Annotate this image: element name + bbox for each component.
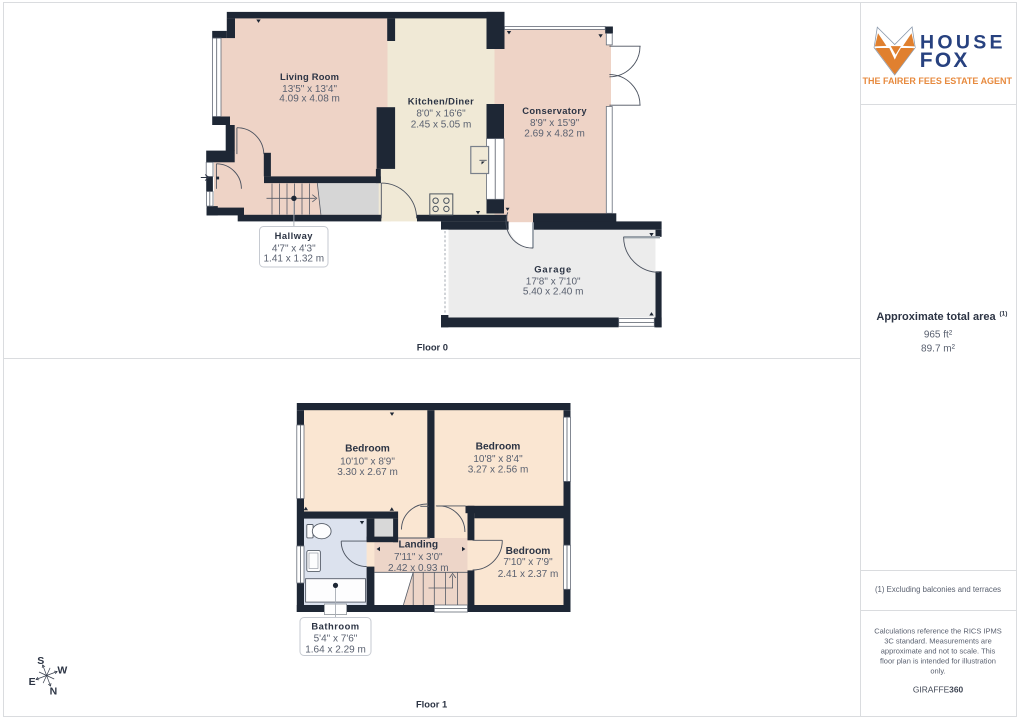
svg-text:7'11" x 3'0": 7'11" x 3'0" [394,552,443,563]
svg-text:FOX: FOX [920,49,968,72]
svg-text:GIRAFFE360: GIRAFFE360 [913,685,964,695]
svg-text:THE FAIRER FEES ESTATE AGENT: THE FAIRER FEES ESTATE AGENT [863,76,1013,87]
svg-text:approximate and not to scale.: approximate and not to scale. This [881,647,996,656]
svg-text:2.41 x 2.37 m: 2.41 x 2.37 m [498,569,559,580]
svg-text:3.27 x 2.56 m: 3.27 x 2.56 m [468,464,529,475]
svg-text:floor plan is intended for ill: floor plan is intended for illustration [880,657,996,666]
svg-text:5'4" x 7'6": 5'4" x 7'6" [314,633,358,644]
svg-text:3C standard. Measurements are: 3C standard. Measurements are [884,637,992,646]
svg-text:1.64 x 2.29 m: 1.64 x 2.29 m [305,644,366,655]
svg-text:8'9" x 15'9": 8'9" x 15'9" [530,118,580,129]
svg-text:89.7 m²: 89.7 m² [921,344,956,355]
svg-text:4.09 x 4.08 m: 4.09 x 4.08 m [279,94,340,105]
svg-text:8'0" x 16'6": 8'0" x 16'6" [416,109,466,120]
svg-text:3.30 x 2.67 m: 3.30 x 2.67 m [337,467,398,478]
svg-text:5.40 x 2.40 m: 5.40 x 2.40 m [523,287,584,298]
svg-text:965 ft²: 965 ft² [924,330,953,341]
svg-text:Bedroom: Bedroom [476,441,521,452]
svg-text:Living Room: Living Room [280,71,339,82]
svg-text:Calculations reference the RIC: Calculations reference the RICS IPMS [874,627,1002,636]
svg-text:only.: only. [930,667,945,676]
svg-text:Landing: Landing [398,540,438,551]
svg-text:Kitchen/Diner: Kitchen/Diner [408,95,474,106]
svg-text:2.45 x 5.05 m: 2.45 x 5.05 m [411,120,472,131]
svg-text:E: E [29,676,36,688]
svg-text:S: S [37,655,44,667]
svg-text:Garage: Garage [534,263,572,274]
svg-text:2.69 x 4.82 m: 2.69 x 4.82 m [524,129,585,140]
svg-text:Floor 1: Floor 1 [416,698,447,709]
svg-text:10'10" x 8'9": 10'10" x 8'9" [340,456,395,467]
svg-text:1.41 x 1.32 m: 1.41 x 1.32 m [264,254,325,265]
svg-text:Bedroom: Bedroom [345,443,390,454]
svg-text:(1): (1) [1000,311,1008,318]
svg-text:10'8" x 8'4": 10'8" x 8'4" [473,454,523,465]
svg-text:2.42 x 0.93 m: 2.42 x 0.93 m [388,563,449,574]
svg-text:(1) Excluding balconies and te: (1) Excluding balconies and terraces [875,585,1001,594]
svg-text:7'10" x 7'9": 7'10" x 7'9" [503,557,553,568]
svg-text:N: N [50,685,58,697]
svg-text:Hallway: Hallway [275,230,314,241]
svg-text:W: W [57,665,67,677]
svg-text:Conservatory: Conservatory [522,105,587,116]
svg-text:Approximate total area: Approximate total area [876,311,996,323]
svg-text:Bedroom: Bedroom [506,546,551,557]
svg-text:Bathroom: Bathroom [311,620,359,631]
svg-text:Floor 0: Floor 0 [417,341,448,352]
